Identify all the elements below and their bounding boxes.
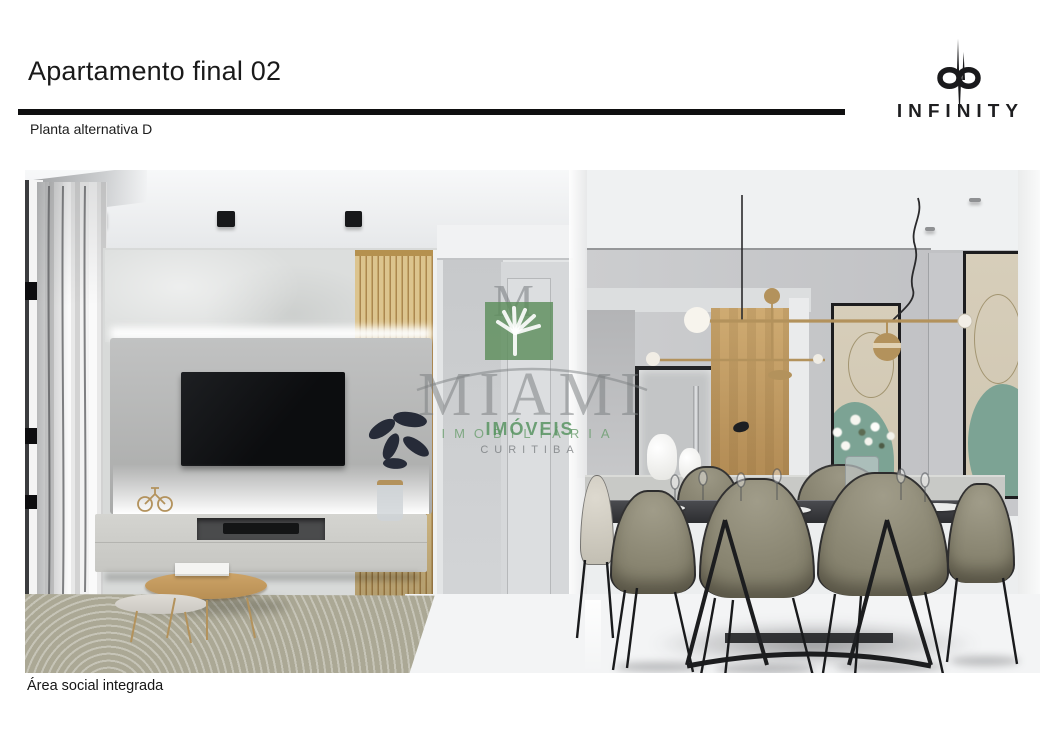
coffee-table-legs (131, 598, 255, 643)
pendant-light (646, 195, 972, 380)
bicycle-figurine (138, 488, 172, 511)
photo-caption: Área social integrada (27, 678, 163, 694)
wine-glasses (671, 469, 929, 502)
apartment-render-image: M MIAMI IMOBILIÁRIA IMÓVEIS CURITIBA (25, 170, 1040, 673)
presentation-slide: Apartamento final 02 Planta alternativa … (0, 0, 1050, 742)
scene-line-details (25, 170, 1040, 673)
page-title: Apartamento final 02 (28, 56, 281, 87)
brand-wordmark: INFINITY (897, 102, 1024, 123)
dining-table-legs (687, 520, 931, 666)
curtain-fold-lines (48, 186, 85, 594)
page-subtitle: Planta alternativa D (30, 121, 152, 137)
title-underline-rule (18, 109, 845, 115)
